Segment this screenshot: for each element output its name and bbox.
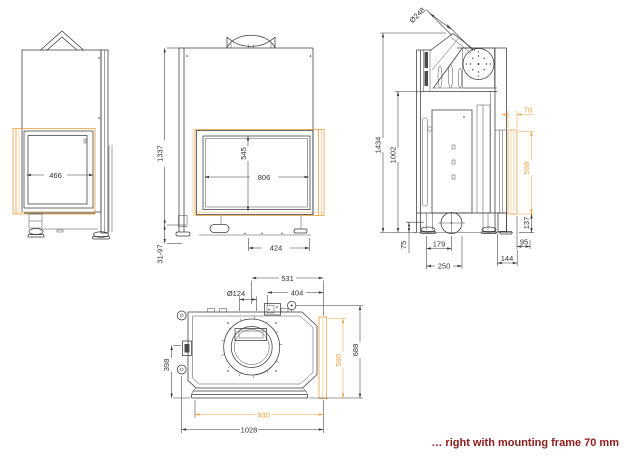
- dim-side-frame-height: 598: [519, 132, 534, 215]
- dim-label-545: 545: [239, 147, 248, 160]
- dim-label-806: 806: [258, 173, 271, 182]
- view-left-side: 466: [13, 31, 112, 239]
- dim-label-466: 466: [49, 171, 62, 180]
- left-side-flue-chevron: [40, 31, 84, 51]
- dim-front-overall-height: 1337: [156, 48, 187, 225]
- side-body-right: [457, 48, 507, 233]
- side-base: [414, 213, 513, 235]
- dim-plan-overall-width: 1028: [182, 376, 324, 434]
- dim-label-1028: 1028: [241, 425, 258, 434]
- dim-label-398: 398: [162, 359, 171, 372]
- dim-label-95: 95: [520, 238, 528, 247]
- left-side-base: [28, 214, 110, 239]
- dim-label-531: 531: [281, 274, 294, 283]
- view-front: 1337 31-97 545 806 424: [156, 35, 325, 263]
- plan-flue-collar: [222, 316, 283, 378]
- front-body: [179, 48, 313, 232]
- dim-label-137: 137: [522, 217, 531, 230]
- plan-mounting-frame: [319, 317, 327, 399]
- dim-plan-flue-center-x: 531: [252, 274, 324, 316]
- dim-front-base-width: 424: [249, 238, 310, 253]
- dim-front-foot-adjust: 31-97: [156, 225, 183, 264]
- dim-side-rear-depth: 144: [497, 234, 517, 266]
- front-chimney-cap: [227, 35, 275, 48]
- dim-label-70: 70: [524, 106, 532, 115]
- dim-label-424: 424: [270, 244, 283, 253]
- dim-label-930: 930: [257, 410, 270, 419]
- dim-label-31-97: 31-97: [156, 244, 165, 263]
- dim-front-glass-height: 545: [239, 136, 248, 211]
- front-base: [176, 216, 311, 237]
- dim-label-250: 250: [438, 262, 451, 271]
- dim-label-flue-diameter: Ø248: [408, 6, 427, 25]
- dim-side-frame-width: 70: [501, 106, 534, 129]
- side-body-left: [417, 50, 433, 233]
- dim-plan-intake-center-x: 404: [268, 288, 324, 305]
- dim-label-598: 598: [522, 162, 531, 175]
- dim-label-590: 590: [334, 354, 343, 367]
- side-louvers: [438, 64, 462, 88]
- side-firebox-internals: [421, 88, 497, 213]
- dim-label-144: 144: [501, 254, 514, 263]
- dim-left-glass-width: 466: [27, 171, 94, 180]
- fireplace-technical-drawing: 466: [0, 0, 624, 460]
- dim-label-179: 179: [433, 240, 446, 249]
- technical-drawing-page: 466: [0, 0, 624, 460]
- plan-hinges-latch: [177, 311, 191, 374]
- dim-plan-intake-diameter: Ø124: [227, 289, 257, 311]
- view-right-side: Ø248 1434 1002 70 598: [374, 6, 535, 271]
- dim-side-frame-bottom-offset: 137: [519, 214, 534, 233]
- front-glass-door: [197, 131, 314, 215]
- dim-label-1337: 1337: [156, 145, 165, 162]
- dim-label-75: 75: [399, 241, 408, 249]
- left-side-body: [22, 50, 112, 233]
- dim-label-688: 688: [351, 344, 360, 357]
- dim-plan-overall-depth: 688: [296, 306, 363, 399]
- dim-label-intake-diameter: Ø124: [227, 289, 245, 298]
- side-blower: [463, 48, 495, 88]
- dim-front-glass-width: 806: [205, 173, 310, 182]
- dim-side-overall-height: 1434: [374, 33, 447, 233]
- plan-body: [188, 309, 317, 399]
- plan-intake-bracket: [265, 301, 296, 315]
- side-flue-duct: [431, 34, 475, 89]
- view-plan: 531 404 Ø124 398 590: [162, 274, 363, 435]
- dim-label-404: 404: [291, 288, 304, 297]
- dim-label-1434: 1434: [374, 137, 383, 154]
- dim-side-flue-diameter: Ø248: [408, 6, 473, 51]
- dim-label-1002: 1002: [389, 147, 398, 164]
- side-mounting-frame: [508, 130, 517, 214]
- caption: … right with mounting frame 70 mm: [431, 437, 619, 449]
- dim-plan-frame-width: 930: [195, 400, 323, 433]
